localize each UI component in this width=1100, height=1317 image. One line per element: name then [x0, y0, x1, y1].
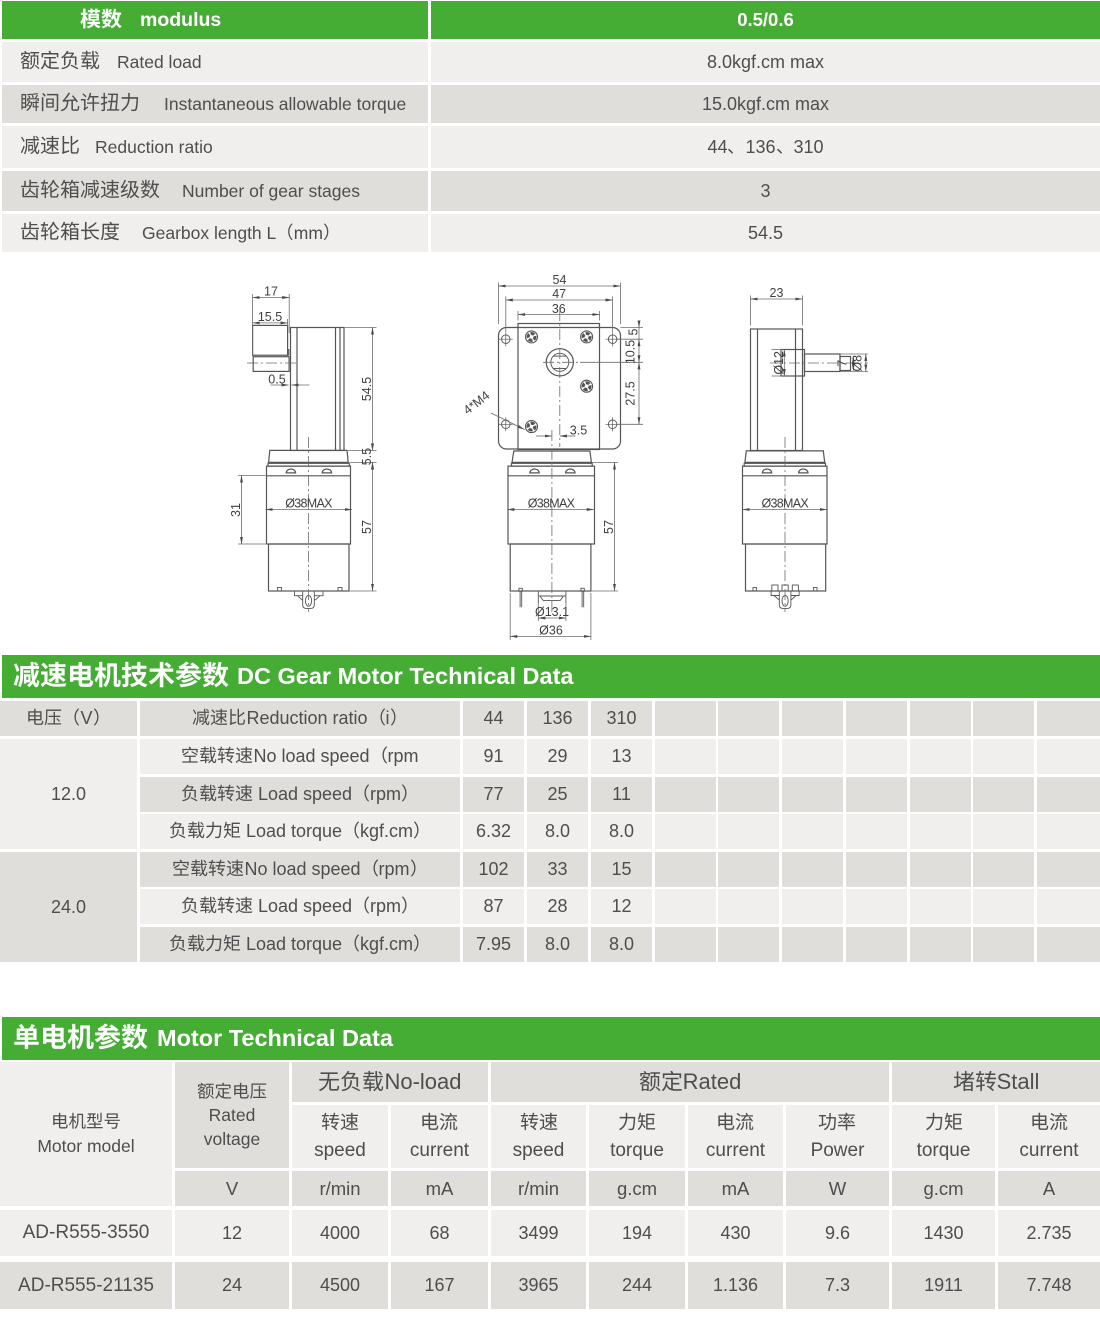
svg-text:7: 7	[835, 360, 849, 367]
svg-text:Ø38MAX: Ø38MAX	[285, 497, 333, 511]
svg-text:3.5: 3.5	[570, 423, 587, 437]
svg-text:4*M4: 4*M4	[461, 388, 493, 417]
svg-text:15.5: 15.5	[258, 310, 282, 324]
svg-text:36: 36	[552, 302, 566, 316]
svg-text:Ø13.1: Ø13.1	[535, 605, 569, 619]
svg-text:Ø38MAX: Ø38MAX	[528, 497, 576, 511]
svg-text:0.5: 0.5	[268, 372, 285, 386]
svg-text:Ø36: Ø36	[539, 624, 563, 638]
svg-text:57: 57	[360, 520, 374, 534]
svg-text:Ø38MAX: Ø38MAX	[762, 497, 810, 511]
svg-text:57: 57	[602, 520, 616, 534]
svg-text:31: 31	[229, 503, 243, 517]
svg-text:54.5: 54.5	[360, 377, 374, 401]
svg-text:Ø8: Ø8	[850, 355, 864, 372]
svg-text:Ø12: Ø12	[772, 351, 786, 375]
svg-text:27.5: 27.5	[624, 381, 638, 405]
svg-text:54: 54	[553, 273, 567, 287]
svg-text:23: 23	[770, 286, 784, 300]
svg-text:47: 47	[552, 287, 566, 301]
svg-text:10.5: 10.5	[623, 340, 637, 364]
svg-text:17: 17	[264, 285, 278, 299]
svg-text:5: 5	[627, 328, 641, 335]
svg-text:5.5: 5.5	[360, 448, 374, 465]
